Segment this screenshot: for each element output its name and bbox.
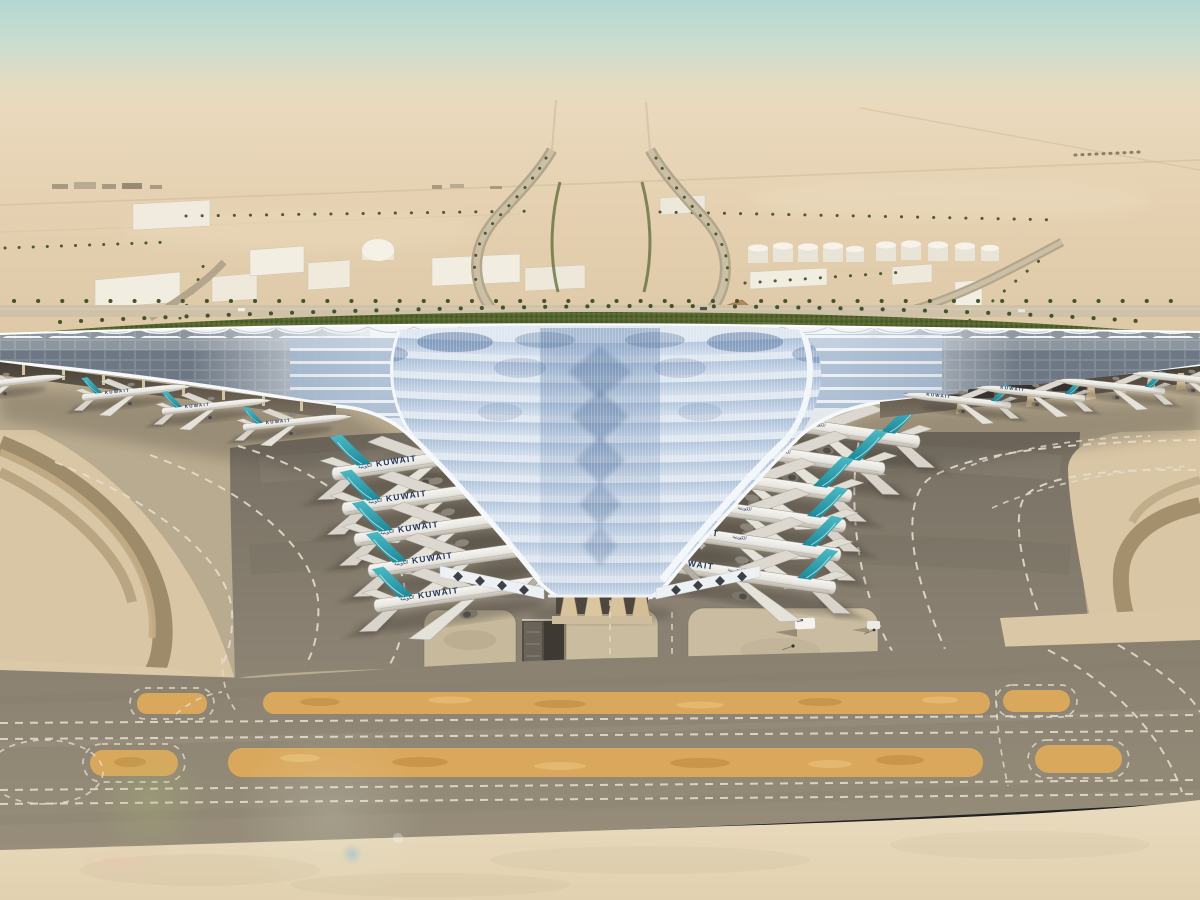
airport-aerial-render: الكويتية KUWAIT الكويتية KUWAIT الكويتية… — [0, 0, 1200, 900]
scene-canvas: الكويتية KUWAIT الكويتية KUWAIT الكويتية… — [0, 0, 1200, 900]
sand-haze-2 — [750, 180, 1150, 220]
dome-building — [362, 239, 394, 261]
